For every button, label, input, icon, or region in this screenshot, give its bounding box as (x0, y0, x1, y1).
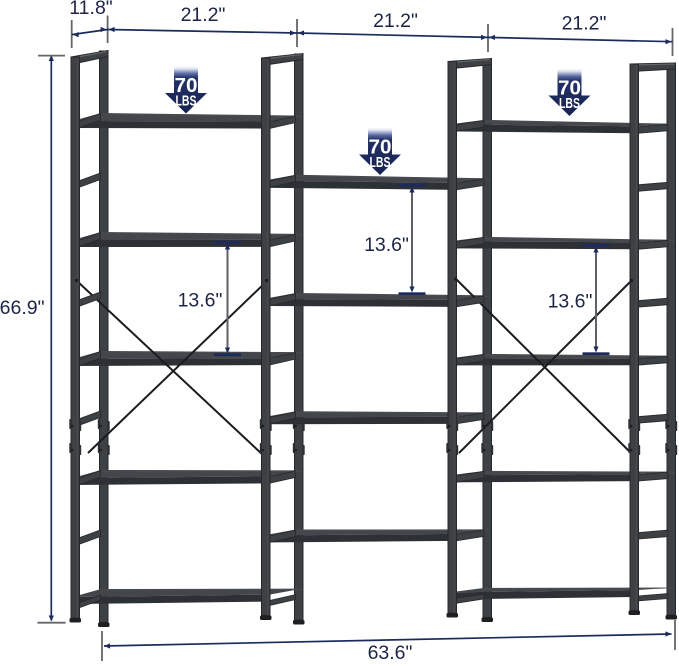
svg-text:13.6": 13.6" (178, 290, 223, 312)
svg-text:63.6": 63.6" (368, 642, 413, 661)
svg-text:21.2": 21.2" (562, 13, 607, 35)
svg-text:LBS: LBS (176, 93, 197, 110)
svg-text:13.6": 13.6" (364, 234, 409, 256)
svg-text:21.2": 21.2" (181, 4, 226, 26)
svg-text:LBS: LBS (559, 95, 580, 112)
svg-text:11.8": 11.8" (69, 0, 113, 19)
svg-text:21.2": 21.2" (373, 10, 418, 32)
svg-text:LBS: LBS (370, 154, 391, 171)
svg-text:13.6": 13.6" (548, 291, 593, 313)
svg-text:66.9": 66.9" (0, 297, 45, 319)
